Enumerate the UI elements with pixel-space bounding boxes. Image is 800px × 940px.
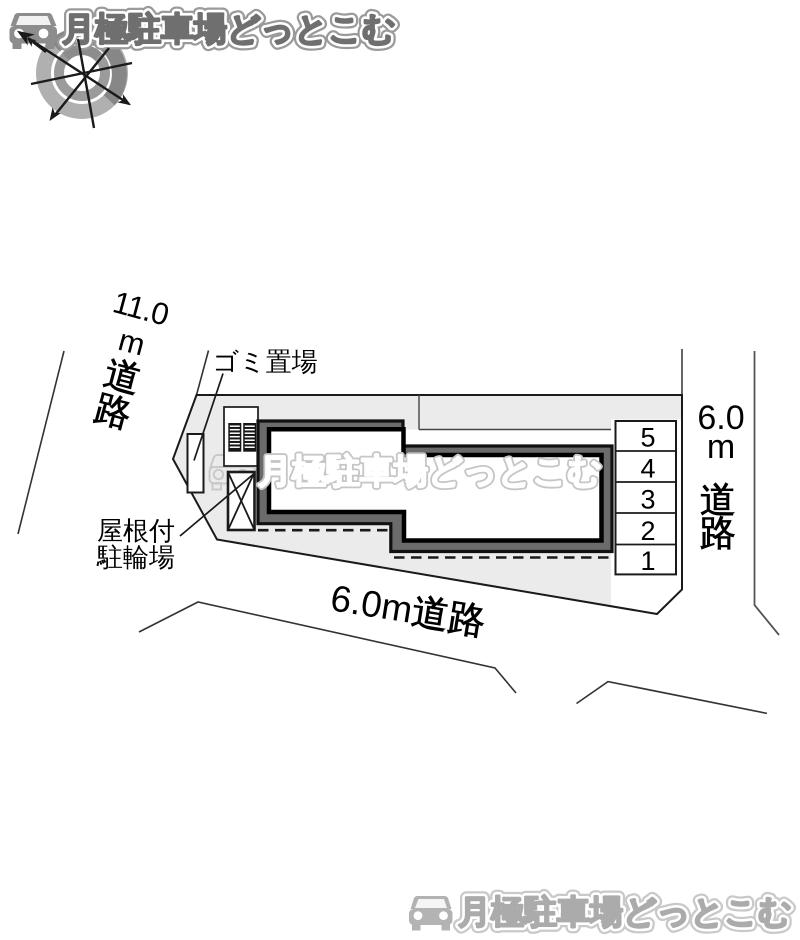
svg-text:11.0: 11.0 (109, 284, 172, 332)
svg-text:m: m (707, 428, 735, 466)
svg-text:1: 1 (640, 546, 655, 576)
svg-text:4: 4 (640, 454, 655, 484)
svg-text:2: 2 (640, 516, 655, 546)
svg-text:3: 3 (640, 485, 655, 515)
svg-text:6.0m: 6.0m (328, 577, 416, 630)
svg-text:m: m (115, 322, 149, 362)
svg-text:5: 5 (640, 423, 655, 453)
